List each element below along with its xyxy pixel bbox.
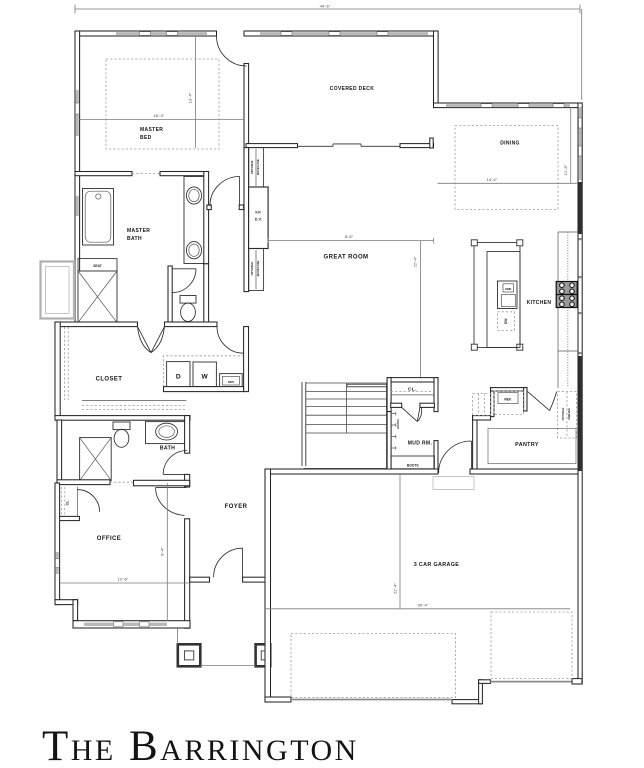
svg-text:44'-6": 44'-6" bbox=[320, 3, 331, 8]
svg-text:D.V.: D.V. bbox=[255, 218, 262, 222]
svg-text:OPTIONAL: OPTIONAL bbox=[250, 261, 254, 275]
svg-text:30'-4": 30'-4" bbox=[418, 602, 429, 607]
svg-text:W: W bbox=[201, 374, 208, 381]
svg-text:BOOKCASE: BOOKCASE bbox=[256, 159, 260, 175]
svg-text:COVERED DECK: COVERED DECK bbox=[330, 86, 375, 92]
svg-text:The Barrington: The Barrington bbox=[42, 723, 359, 768]
svg-text:BATH: BATH bbox=[160, 446, 175, 452]
svg-text:22'-4": 22'-4" bbox=[393, 583, 398, 594]
svg-text:14'-0": 14'-0" bbox=[487, 177, 498, 182]
svg-text:BOOKCASE: BOOKCASE bbox=[256, 261, 260, 277]
svg-text:PANTRY: PANTRY bbox=[515, 442, 539, 448]
svg-text:22'-4": 22'-4" bbox=[413, 256, 418, 267]
svg-text:SHELVES: SHELVES bbox=[568, 408, 571, 420]
svg-text:KITCHEN: KITCHEN bbox=[527, 300, 552, 306]
svg-text:OPTIONAL: OPTIONAL bbox=[250, 160, 254, 174]
svg-text:F.P.: F.P. bbox=[255, 211, 261, 215]
svg-text:SEAT: SEAT bbox=[93, 264, 102, 268]
svg-text:BED: BED bbox=[140, 135, 152, 141]
svg-text:SINK: SINK bbox=[505, 287, 511, 291]
svg-text:MASTER: MASTER bbox=[140, 127, 163, 133]
svg-text:8'-8": 8'-8" bbox=[345, 234, 354, 239]
svg-text:DINING: DINING bbox=[500, 141, 520, 147]
svg-text:CL.: CL. bbox=[408, 387, 417, 393]
svg-text:REF.: REF. bbox=[504, 397, 511, 401]
svg-text:OPTIONAL: OPTIONAL bbox=[562, 407, 565, 420]
svg-text:FOYER: FOYER bbox=[225, 504, 248, 510]
svg-text:DRS: DRS bbox=[228, 380, 234, 384]
svg-text:16'-3": 16'-3" bbox=[154, 113, 165, 118]
svg-text:CLOSET: CLOSET bbox=[96, 377, 123, 383]
svg-text:BATH: BATH bbox=[127, 236, 142, 242]
svg-text:MUD RM.: MUD RM. bbox=[408, 441, 433, 447]
svg-text:13'-4": 13'-4" bbox=[188, 92, 193, 103]
svg-text:BOOTS: BOOTS bbox=[407, 463, 420, 467]
svg-text:HOOKS: HOOKS bbox=[396, 419, 400, 429]
svg-text:DW: DW bbox=[504, 318, 508, 324]
svg-text:12'-8": 12'-8" bbox=[563, 164, 568, 175]
svg-text:CL: CL bbox=[66, 500, 70, 506]
svg-text:GREAT ROOM: GREAT ROOM bbox=[324, 255, 369, 261]
svg-text:OFFICE: OFFICE bbox=[97, 536, 121, 542]
svg-text:8'-4": 8'-4" bbox=[160, 547, 165, 556]
svg-text:D: D bbox=[176, 374, 181, 381]
svg-text:MASTER: MASTER bbox=[127, 228, 150, 234]
svg-text:12'-6": 12'-6" bbox=[118, 576, 129, 581]
svg-text:3 CAR GARAGE: 3 CAR GARAGE bbox=[414, 562, 460, 568]
